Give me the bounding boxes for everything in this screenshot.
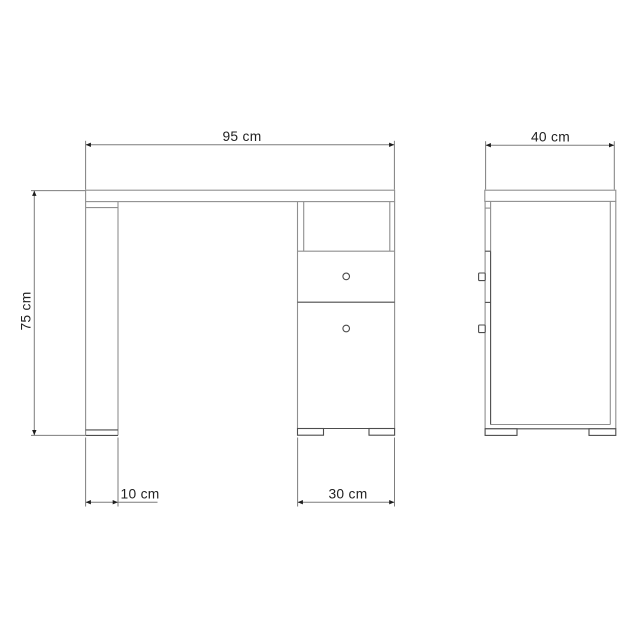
svg-text:30 cm: 30 cm — [328, 487, 367, 502]
svg-text:95 cm: 95 cm — [222, 129, 261, 144]
svg-text:75 cm: 75 cm — [19, 291, 34, 330]
svg-text:40 cm: 40 cm — [531, 130, 570, 145]
svg-text:10 cm: 10 cm — [121, 487, 160, 502]
